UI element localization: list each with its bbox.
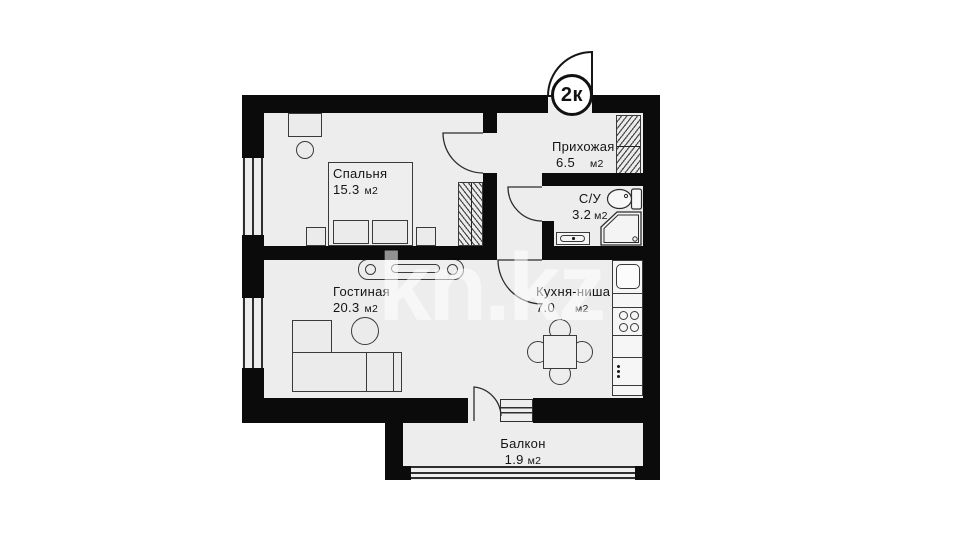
wall-bathroom-kitchen (542, 246, 643, 260)
appliance-dot (617, 365, 620, 368)
room-area-unit: м2 (590, 158, 604, 170)
tv-stand-knob (365, 264, 376, 275)
tv-stand (358, 259, 464, 280)
sofa-cushion-line (366, 353, 367, 391)
apartment-type-label: 2к (561, 84, 583, 107)
room-area-unit: м2 (365, 303, 379, 315)
washbasin (556, 232, 590, 245)
wardrobe-bedroom (458, 182, 483, 246)
counter-divider (613, 293, 642, 294)
room-name: Гостиная (333, 284, 390, 299)
desk (288, 113, 322, 137)
room-area: 20.3м2 (333, 300, 390, 317)
wall-bedroom-hall-upper (483, 113, 497, 133)
nightstand (416, 227, 436, 246)
room-name: Спальня (333, 166, 387, 181)
room-label-kitchen: Кухня-ниша 7.0м2 (536, 284, 610, 317)
room-area-value: 1.9 (505, 452, 524, 467)
appliance-dot (617, 370, 620, 373)
room-area-value: 15.3 (333, 182, 360, 197)
appliance-dot (617, 375, 620, 378)
room-area: 3.2м2 (563, 207, 617, 224)
window-bedroom (243, 158, 263, 235)
wall-bottom-left (242, 398, 468, 423)
room-label-balcony: Балкон 1.9м2 (492, 436, 554, 469)
wall-balcony-cap-right (635, 466, 643, 480)
cooktop-burner (630, 323, 639, 332)
tv-screen (391, 264, 440, 273)
wall-balcony-left (385, 398, 403, 480)
sofa-base (292, 352, 402, 392)
room-name: Прихожая (552, 139, 615, 154)
bed-pillow (333, 220, 369, 244)
counter-divider (613, 335, 642, 336)
window-living (243, 298, 263, 368)
room-area: 15.3м2 (333, 182, 387, 199)
room-area-value: 20.3 (333, 300, 360, 315)
room-area-unit: м2 (528, 455, 542, 467)
bed-pillow (372, 220, 408, 244)
wall-balcony-cap-left (403, 466, 411, 480)
wall-bedroom-living (264, 246, 497, 260)
room-area-unit: м2 (575, 303, 589, 315)
wall-bottom-right (533, 398, 643, 423)
room-area: 6.5м2 (556, 155, 615, 172)
room-area-unit: м2 (365, 185, 379, 197)
floor-plan: 2к Спальня 15.3м2 Прихожая 6.5м2 С/У 3.2… (0, 0, 977, 550)
washbasin-faucet (572, 237, 575, 240)
room-area-value: 3.2 (572, 207, 591, 222)
room-name: Балкон (492, 436, 554, 451)
room-label-bedroom: Спальня 15.3м2 (333, 166, 387, 199)
cooktop-burner (630, 311, 639, 320)
wall-bathroom-left (542, 221, 554, 246)
coffee-table (351, 317, 379, 345)
room-label-bathroom: С/У 3.2м2 (563, 191, 617, 224)
dining-table (543, 335, 577, 369)
wardrobe-rail (617, 146, 640, 147)
stool-icon (296, 141, 314, 159)
kitchen-sink (616, 264, 640, 289)
counter-divider (613, 357, 642, 358)
wall-right (643, 95, 660, 480)
apartment-type-badge: 2к (551, 74, 593, 116)
counter-divider (613, 307, 642, 308)
room-area: 1.9м2 (492, 452, 554, 469)
window-balcony-door (500, 399, 533, 422)
wall-hall-bathroom (542, 173, 643, 186)
cooktop-burner (619, 311, 628, 320)
wall-left-middle (242, 235, 264, 298)
counter-divider (613, 385, 642, 386)
room-name: Кухня-ниша (536, 284, 610, 299)
wall-top-left (242, 95, 548, 113)
wardrobe-hallway (616, 115, 641, 176)
room-area-value: 7.0 (536, 300, 555, 315)
sofa-armrest-line (393, 353, 394, 391)
wall-left-upper (242, 95, 264, 158)
tv-stand-knob (447, 264, 458, 275)
room-area-unit: м2 (594, 210, 608, 222)
room-label-living: Гостиная 20.3м2 (333, 284, 390, 317)
wardrobe-rail (471, 183, 472, 245)
room-label-hallway: Прихожая 6.5м2 (552, 139, 615, 172)
nightstand (306, 227, 326, 246)
room-area-value: 6.5 (556, 155, 575, 170)
room-area: 7.0м2 (536, 300, 610, 317)
room-name: С/У (563, 191, 617, 206)
kitchen-counter (612, 260, 643, 396)
cooktop-burner (619, 323, 628, 332)
